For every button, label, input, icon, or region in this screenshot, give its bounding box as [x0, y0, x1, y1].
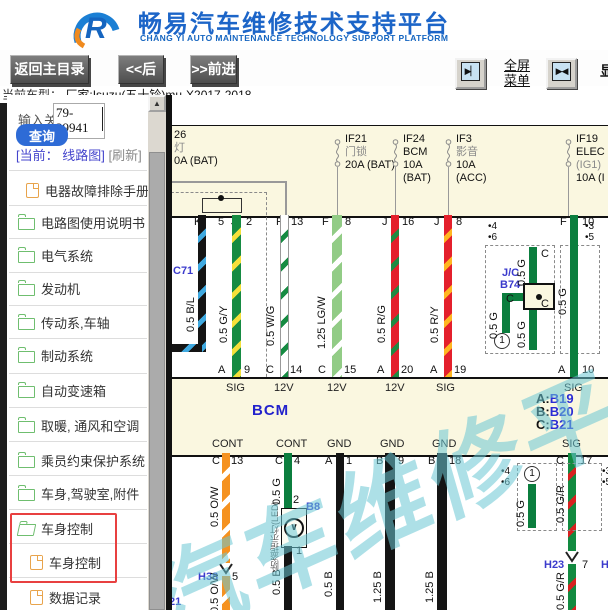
wire-lightgreen-white	[332, 215, 342, 377]
bcm-func: 12V	[385, 382, 405, 394]
collapse-icon: ▶▏	[461, 62, 480, 81]
pin-label: 14	[290, 364, 302, 376]
pin-label: 16	[402, 216, 414, 228]
fuse-lead	[337, 167, 339, 216]
wire-label: 0.5 R/Y	[429, 291, 441, 343]
wire-red-green	[391, 215, 399, 377]
pin-label: 15	[344, 364, 356, 376]
wire-black-blue-branch	[172, 344, 202, 352]
wire-label: 1.25 LG/W	[316, 281, 328, 349]
wire-label: 0.5 G/Y	[218, 288, 230, 343]
sidebar-item-data-record[interactable]: 数据记录	[30, 587, 101, 607]
pin-label: 8	[345, 216, 351, 228]
bcm-func: SIG	[562, 438, 581, 450]
wire-label: 0.5 G	[557, 271, 569, 315]
folder-icon	[18, 284, 35, 296]
current-view-link[interactable]: [当前： 线路图]	[16, 148, 105, 163]
pin-label: A	[377, 364, 384, 376]
wire-orange-white	[222, 576, 230, 610]
wire-label: 0.5 O/W	[209, 587, 221, 610]
folder-icon	[18, 386, 35, 398]
pin-label: A	[325, 455, 332, 467]
pin-label: 4	[294, 455, 300, 467]
wire-orange-white	[222, 453, 230, 563]
file-icon	[26, 183, 39, 198]
wire-label: 0.5 G	[516, 248, 528, 286]
folder-icon	[18, 351, 35, 363]
pin-label: 20	[401, 364, 413, 376]
sidebar-scrollbar[interactable]: ▲	[148, 95, 166, 610]
pin-label: J	[382, 216, 388, 228]
pin-label: J	[434, 216, 440, 228]
wire-label: 0.5 W/G	[265, 288, 277, 346]
divider	[9, 407, 147, 408]
folder-icon	[18, 251, 35, 263]
split-icon: ▶◀	[552, 62, 571, 81]
ref-mark: •3	[602, 466, 608, 477]
bcm-func: SIG	[436, 382, 455, 394]
pin-label: 18	[449, 455, 461, 467]
connector-clipped-corner: 21	[172, 596, 181, 608]
scroll-up-button[interactable]: ▲	[148, 95, 166, 112]
fullscreen-menu-link[interactable]: 全屏 菜单	[504, 58, 530, 88]
wire-label: 0.5 G/R	[555, 575, 567, 610]
sidebar: 输入关 79- 29941 查询 [当前： 线路图] [刷新] 电器故障排除手册…	[7, 95, 148, 610]
fuse-if3-label: IF3影音10A(ACC)	[456, 133, 487, 185]
wire-white-green	[280, 215, 289, 377]
lamp-pin-bottom: 1	[296, 545, 302, 557]
wire-black-blue	[198, 215, 206, 352]
pin-label: 9	[244, 364, 250, 376]
current-view-line: [当前： 线路图] [刷新]	[16, 148, 146, 164]
fuse-lead	[568, 167, 570, 216]
jc-pin: C	[541, 298, 549, 310]
ref-mark: •4	[488, 221, 497, 232]
splice-dot	[218, 195, 224, 201]
connector-h38-pin: 5	[232, 571, 238, 583]
left-frame-edge	[0, 103, 7, 610]
app-window: R 畅易汽车维修技术支持平台 CHANG YI AUTO MAINTENANCE…	[0, 0, 608, 610]
wire-green-yellow	[232, 215, 241, 377]
pin-label: B	[428, 455, 435, 467]
bcm-func: SIG	[226, 382, 245, 394]
pin-label: 19	[454, 364, 466, 376]
pin-label: A	[430, 364, 437, 376]
connector-h23-pin: 7	[582, 559, 588, 571]
wire-black-lamp-ground	[284, 546, 292, 610]
divider	[9, 205, 147, 206]
wire-label: 0.5 G	[271, 463, 283, 505]
ref-mark: •4	[501, 466, 510, 477]
indicator-lamp-b8: ∨	[281, 508, 307, 548]
pin-label: F	[560, 216, 567, 228]
wire-label: 0.5 G	[516, 310, 528, 348]
sidebar-item-fault-manual[interactable]: 电器故障排除手册	[26, 180, 148, 200]
pin-label: 5	[218, 216, 224, 228]
folder-icon	[18, 489, 35, 501]
pin-label: C	[212, 455, 220, 467]
wire-label: 0.5 R/G	[376, 291, 388, 343]
harness-dashed-box-lower-2	[562, 463, 602, 531]
wire-black-ground-a1	[336, 453, 344, 610]
folder-icon	[18, 421, 35, 433]
bcm-func: GND	[327, 438, 351, 450]
wire-green-lamp	[284, 453, 292, 508]
wire-label: 0.5 B	[323, 555, 335, 597]
page-subtitle: CHANG YI AUTO MAINTENANCE TECHNOLOGY SUP…	[140, 33, 448, 43]
connector-c71: C71	[173, 265, 193, 277]
bcm-func: GND	[432, 438, 456, 450]
wire-red-yellow	[444, 215, 452, 377]
wire-label: 0.5 G	[488, 301, 500, 339]
pin-label: C	[318, 364, 326, 376]
wire-label: 0.5 O/W	[209, 475, 221, 527]
folder-icon	[18, 456, 35, 468]
sidebar-item-wiring-guide[interactable]: 电路图使用说明书	[18, 212, 145, 232]
wire-green-main	[570, 215, 578, 377]
back-button[interactable]: <<后退.	[118, 55, 164, 84]
sidebar-item-drivetrain[interactable]: 传动系,车轴	[18, 312, 110, 332]
wire-black-ground-b18	[437, 453, 447, 610]
wire-label: 0.5 G	[515, 487, 527, 527]
wire-green-red	[568, 564, 576, 610]
fuse-lead	[395, 167, 397, 216]
header: R 畅易汽车维修技术支持平台 CHANG YI AUTO MAINTENANCE…	[0, 0, 608, 50]
pin-label: 9	[398, 455, 404, 467]
pin-label: B	[376, 455, 383, 467]
fuse-if26-label: 26灯0A (BAT)	[174, 129, 218, 168]
fuse-feed-line	[172, 181, 286, 183]
scrollbar-thumb[interactable]	[149, 152, 165, 610]
lamp-label: B8	[306, 501, 320, 513]
brand-logo-icon: R	[68, 1, 124, 49]
jc-pin: C	[541, 248, 549, 260]
pin-label: 2	[246, 216, 252, 228]
folder-icon	[18, 318, 35, 330]
divider	[9, 272, 147, 273]
fuse-if24-label: IF24BCM10A(BAT)	[403, 133, 431, 185]
lamp-pin-top: 2	[293, 494, 299, 506]
wire-label: 0.5 B	[271, 553, 283, 595]
connector-clipped: H	[601, 559, 608, 571]
pin-label: 1	[346, 455, 352, 467]
sidebar-item-transmission[interactable]: 自动变速箱	[18, 380, 106, 400]
pin-label: A	[558, 364, 565, 376]
text-caret	[102, 107, 103, 131]
pin-label: 8	[456, 216, 462, 228]
bcm-connector-map: A:B19 B:B20 C:B21	[536, 392, 574, 431]
toolbar: 返回主目录 <<后退. >>前进 ▶▏ 全屏 菜单 ▶◀ 显	[0, 50, 608, 86]
connector-h23: H23	[544, 559, 564, 571]
fuse-if19-label: IF19ELEC(IG1)10A (I	[576, 133, 605, 185]
jc-pin: C	[506, 293, 514, 305]
split-view-button[interactable]: ▶◀	[546, 58, 577, 89]
led-symbol-icon: ∨	[284, 518, 304, 538]
collapse-sidebar-button[interactable]: ▶▏	[455, 58, 486, 89]
ref-mark: •6	[488, 232, 497, 243]
wire-black-ground-b9	[385, 453, 395, 610]
bcm-func: GND	[380, 438, 404, 450]
svg-text:R: R	[85, 12, 107, 45]
divider	[9, 441, 147, 442]
wire-label: 1.25 B	[424, 553, 436, 603]
folder-icon	[18, 218, 35, 230]
back-home-button[interactable]: 返回主目录	[10, 55, 89, 84]
divider	[9, 238, 147, 239]
ref-mark: •5	[602, 477, 608, 488]
pin-label: A	[218, 364, 225, 376]
pin-label: C	[266, 364, 274, 376]
wire-label: 0.5 G/R	[555, 477, 567, 523]
bcm-func: 12V	[327, 382, 347, 394]
wire-green-stub-lower	[528, 484, 536, 528]
bcm-func: CONT	[276, 438, 307, 450]
divider	[9, 305, 147, 306]
wiring-diagram-pane: 26灯0A (BAT) IF21门锁20A (BAT) IF24BCM10A(B…	[172, 95, 608, 610]
fuse-lead	[448, 167, 450, 216]
sidebar-item-restraints[interactable]: 乘员约束保护系统	[18, 450, 145, 470]
sidebar-item-hvac[interactable]: 取暖, 通风和空调	[18, 415, 139, 435]
sidebar-item-brakes[interactable]: 制动系统	[18, 345, 93, 365]
bcm-func: CONT	[212, 438, 243, 450]
divider	[9, 373, 147, 374]
ref-mark: •6	[501, 477, 510, 488]
divider	[9, 338, 147, 339]
bcm-func: 12V	[274, 382, 294, 394]
clipped-toolbar-text: 显	[600, 61, 608, 81]
sidebar-item-electrical[interactable]: 电气系统	[18, 245, 93, 265]
pin-label: F	[322, 216, 329, 228]
pin-label: 10	[582, 216, 594, 228]
bcm-title: BCM	[252, 402, 289, 419]
pin-label: 10	[582, 364, 594, 376]
pin-label: 13	[231, 455, 243, 467]
junction-block-b74	[523, 283, 555, 310]
file-icon	[30, 590, 43, 605]
sidebar-item-engine[interactable]: 发动机	[18, 278, 80, 298]
ref-mark: •5	[585, 232, 594, 243]
divider	[9, 170, 147, 171]
refresh-link[interactable]: [刷新]	[108, 148, 141, 163]
sidebar-item-body-cab[interactable]: 车身,驾驶室,附件	[18, 483, 139, 503]
divider	[9, 509, 147, 510]
fuse-if21-label: IF21门锁20A (BAT)	[345, 133, 395, 172]
forward-button[interactable]: >>前进	[190, 55, 237, 84]
splice-circle-1: 1	[524, 466, 540, 482]
query-button[interactable]: 查询	[16, 124, 68, 146]
fuse-feed-line	[285, 181, 287, 216]
wire-label: 0.5 B/L	[185, 277, 197, 332]
selection-highlight-box	[10, 513, 117, 583]
wire-label: 1.25 B	[372, 553, 384, 603]
divider	[9, 475, 147, 476]
pin-label: 13	[291, 216, 303, 228]
